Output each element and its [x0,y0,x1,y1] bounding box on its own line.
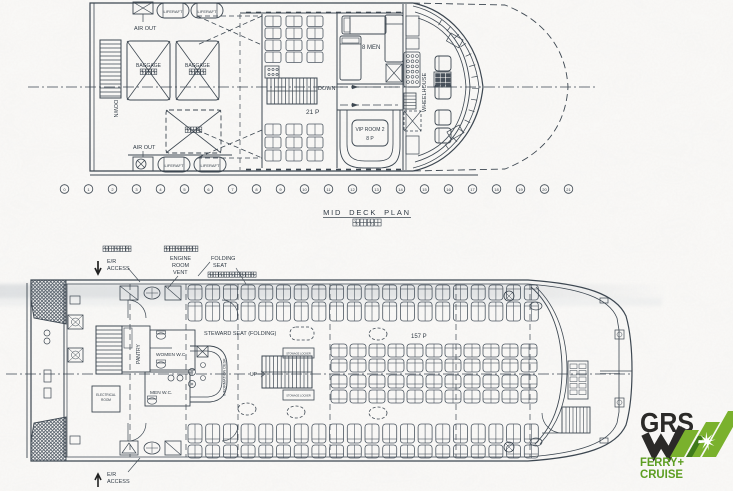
svg-text:ACCESS: ACCESS [107,479,130,485]
svg-text:13: 13 [374,187,379,192]
svg-text:LIFERAFT: LIFERAFT [165,163,184,168]
svg-text:ENGINE: ENGINE [170,256,191,262]
svg-text:E/R: E/R [107,472,116,478]
svg-text:WOMEN W.C.: WOMEN W.C. [156,352,187,358]
svg-text:8 P: 8 P [366,136,374,142]
svg-text:MID DECK PLAN: MID DECK PLAN [323,208,411,217]
svg-text:20: 20 [542,187,547,192]
svg-text:DOWN: DOWN [112,100,118,117]
svg-text:ELECTRICAL: ELECTRICAL [96,393,116,397]
svg-text:17: 17 [470,187,475,192]
svg-text:PANTRY: PANTRY [136,344,142,364]
svg-text:E/R: E/R [107,259,116,265]
svg-text:10: 10 [302,187,307,192]
svg-text:LIFERAFT: LIFERAFT [201,163,220,168]
svg-text:VENT: VENT [173,270,188,276]
svg-text:LIFERAFT: LIFERAFT [164,9,183,14]
svg-text:STEWARD SEAT (FOLDING): STEWARD SEAT (FOLDING) [204,331,276,337]
svg-text:UP: UP [250,372,258,378]
svg-text:21 P: 21 P [306,109,319,116]
svg-text:15: 15 [422,187,427,192]
svg-text:CRUISE: CRUISE [640,467,683,481]
svg-text:STOWAGE LOCKER: STOWAGE LOCKER [286,394,311,398]
svg-text:VIP ROOM 2: VIP ROOM 2 [355,127,384,133]
svg-text:18: 18 [494,187,499,192]
svg-text:SEAT: SEAT [213,263,228,269]
svg-text:AIR OUT: AIR OUT [134,26,157,32]
svg-text:BAGGAGE: BAGGAGE [185,63,211,69]
svg-text:AIR OUT: AIR OUT [133,145,156,151]
svg-text:DOWN: DOWN [318,86,335,92]
svg-text:ROOM: ROOM [101,398,111,402]
svg-text:ROOM: ROOM [172,263,190,269]
svg-text:LIFERAFT: LIFERAFT [198,9,217,14]
svg-text:ACCESS: ACCESS [107,266,130,272]
svg-text:16: 16 [446,187,451,192]
svg-text:FOLDING: FOLDING [211,256,235,262]
svg-text:BAGGAGE: BAGGAGE [136,63,162,69]
svg-text:MEN W.C.: MEN W.C. [150,390,172,396]
svg-text:8 MEN: 8 MEN [362,45,380,51]
svg-text:21: 21 [566,187,571,192]
svg-text:157 P: 157 P [411,334,427,340]
svg-text:WHEELHOUSE: WHEELHOUSE [422,73,428,112]
svg-text:INFORMATION DESK: INFORMATION DESK [223,358,227,396]
svg-text:STOWAGE LOCKER: STOWAGE LOCKER [286,352,311,356]
svg-text:14: 14 [398,187,403,192]
svg-text:19: 19 [518,187,523,192]
svg-text:12: 12 [350,187,355,192]
